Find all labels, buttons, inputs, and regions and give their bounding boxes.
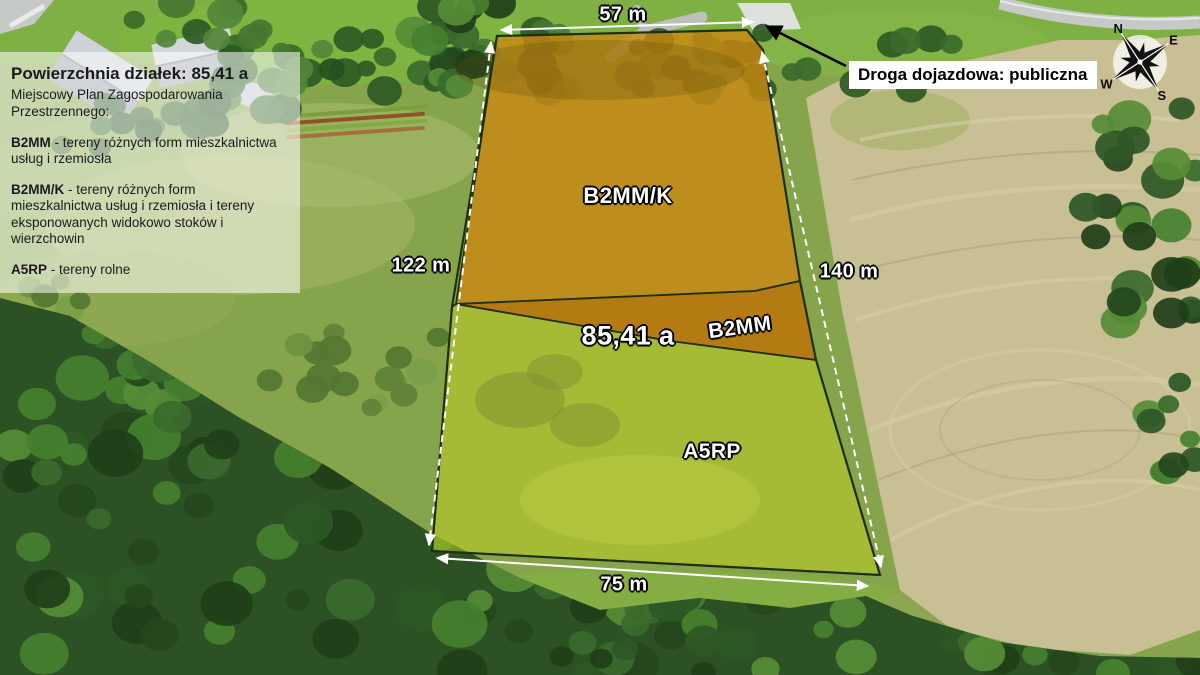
legend-code: B2MM [11, 135, 51, 150]
legend-code: B2MM/K [11, 182, 64, 197]
annotated-aerial-photo: N E S W 57 m 122 m 140 m 75 m 85,41 a B2… [0, 0, 1200, 675]
dimension-label-bottom: 75 m [600, 574, 647, 597]
legend-item-a5rp: A5RP - tereny rolne [11, 262, 288, 278]
compass-letter-w: W [1100, 76, 1113, 91]
legend-desc: - tereny różnych form mieszkalnictwa usł… [11, 135, 277, 166]
road-callout: Droga dojazdowa: publiczna [849, 61, 1097, 89]
area-label: 85,41 a [582, 321, 675, 352]
legend-desc: - tereny rolne [51, 262, 131, 277]
zone-label-a5rp: A5RP [683, 440, 741, 464]
zone-label-b2mmk: B2MM/K [583, 183, 672, 209]
info-panel-subtitle: Miejscowy Plan Zagospodarowania Przestrz… [11, 87, 288, 119]
info-panel: Powierzchnia działek: 85,41 a Miejscowy … [0, 52, 300, 293]
legend-item-b2mm: B2MM - tereny różnych form mieszkalnictw… [11, 135, 288, 167]
compass-letter-s: S [1157, 88, 1166, 103]
compass-letter-n: N [1114, 21, 1123, 36]
legend-code: A5RP [11, 262, 47, 277]
legend-item-b2mmk: B2MM/K - tereny różnych form mieszkalnic… [11, 182, 288, 247]
compass-letter-e: E [1169, 33, 1178, 48]
info-panel-title: Powierzchnia działek: 85,41 a [11, 64, 288, 84]
dimension-label-right: 140 m [820, 261, 879, 284]
dimension-label-left: 122 m [392, 255, 451, 278]
dimension-label-top: 57 m [599, 4, 646, 27]
